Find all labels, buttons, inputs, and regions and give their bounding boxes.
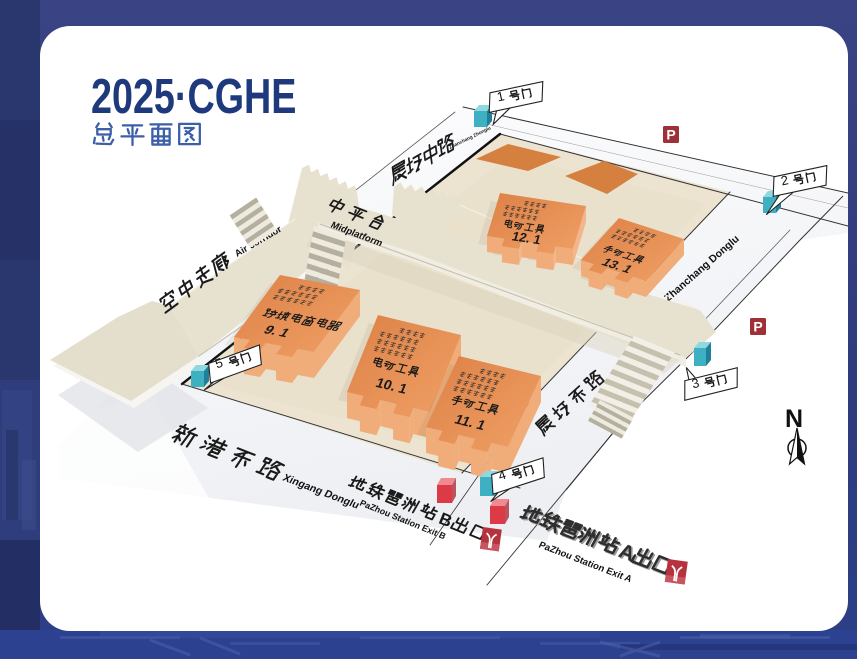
svg-text:2025·CGHE: 2025·CGHE xyxy=(91,69,296,124)
svg-text:P: P xyxy=(666,127,675,143)
svg-text:P: P xyxy=(753,319,762,335)
svg-text:N: N xyxy=(785,405,803,433)
